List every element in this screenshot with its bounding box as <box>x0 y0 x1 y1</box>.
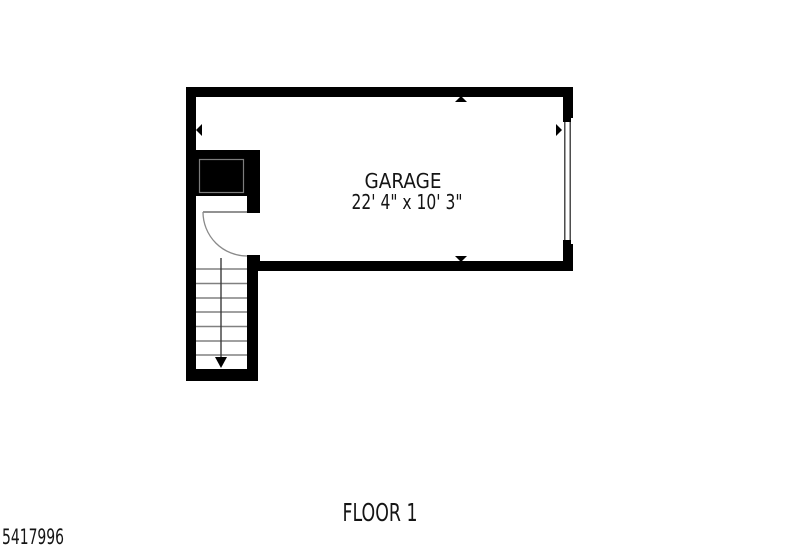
stairs-down-arrow-icon <box>215 357 227 368</box>
garage-door-bottom-cap <box>563 240 571 244</box>
wall-garage-bottom <box>247 261 573 271</box>
wall-hall-right-upper <box>247 150 260 213</box>
wall-stairwell-right <box>247 271 258 381</box>
dimension-arrow-right-icon <box>556 124 562 136</box>
wall-left <box>186 87 196 381</box>
wall-stairwell-bottom <box>186 369 258 381</box>
wall-hall-right-lower <box>247 255 260 263</box>
entry-door <box>203 212 247 256</box>
wall-right-upper <box>563 87 573 118</box>
garage-door-top-cap <box>563 118 571 122</box>
dimension-arrow-left-icon <box>196 124 202 136</box>
closet <box>196 156 247 196</box>
closet-outline <box>200 160 244 193</box>
floor-plan-image: GARAGE 22' 4" x 10' 3" FLOOR 1 5417996 <box>0 0 800 550</box>
listing-id: 5417996 <box>2 525 64 549</box>
door-swing-arc-icon <box>203 212 247 256</box>
garage-door <box>563 118 571 244</box>
floor-plan-svg: GARAGE 22' 4" x 10' 3" FLOOR 1 5417996 <box>0 0 800 550</box>
staircase <box>196 258 247 368</box>
walls <box>186 87 573 381</box>
wall-top <box>186 87 573 97</box>
room-dimensions-garage: 22' 4" x 10' 3" <box>352 190 463 214</box>
floor-title: FLOOR 1 <box>343 498 418 527</box>
